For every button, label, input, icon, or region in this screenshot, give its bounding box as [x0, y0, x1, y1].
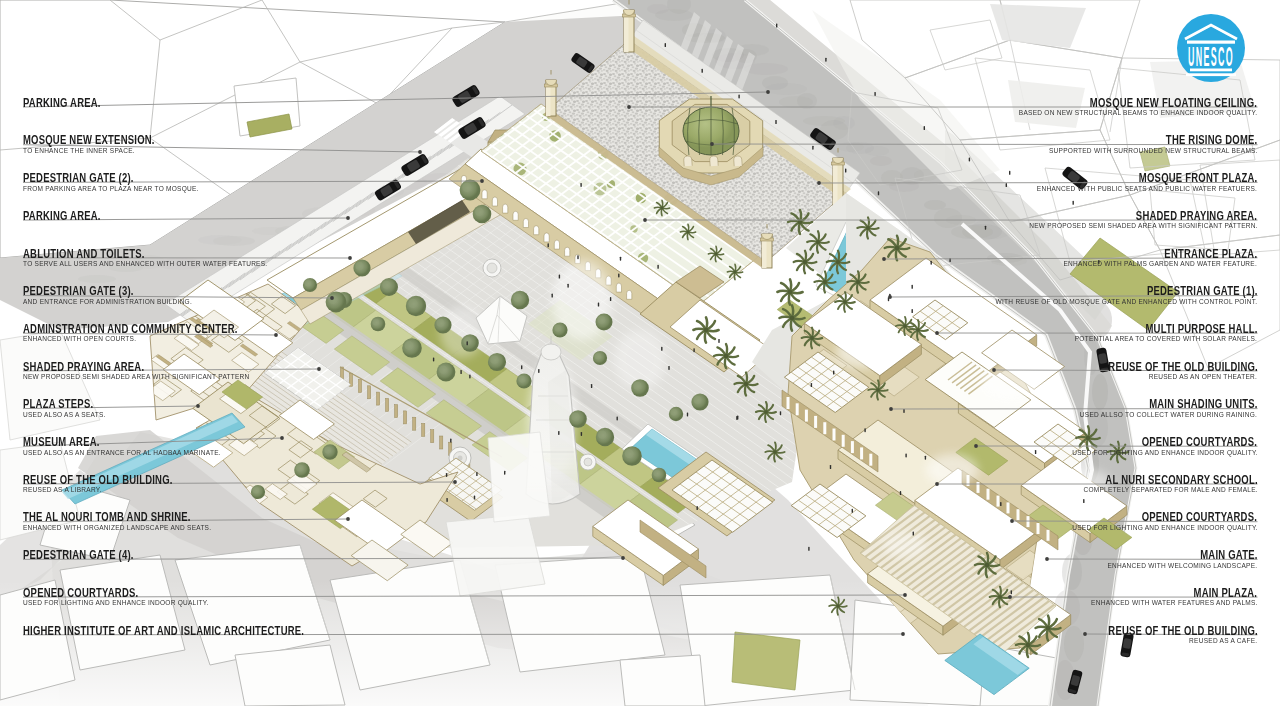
svg-text:UNESCO: UNESCO	[1188, 41, 1234, 72]
